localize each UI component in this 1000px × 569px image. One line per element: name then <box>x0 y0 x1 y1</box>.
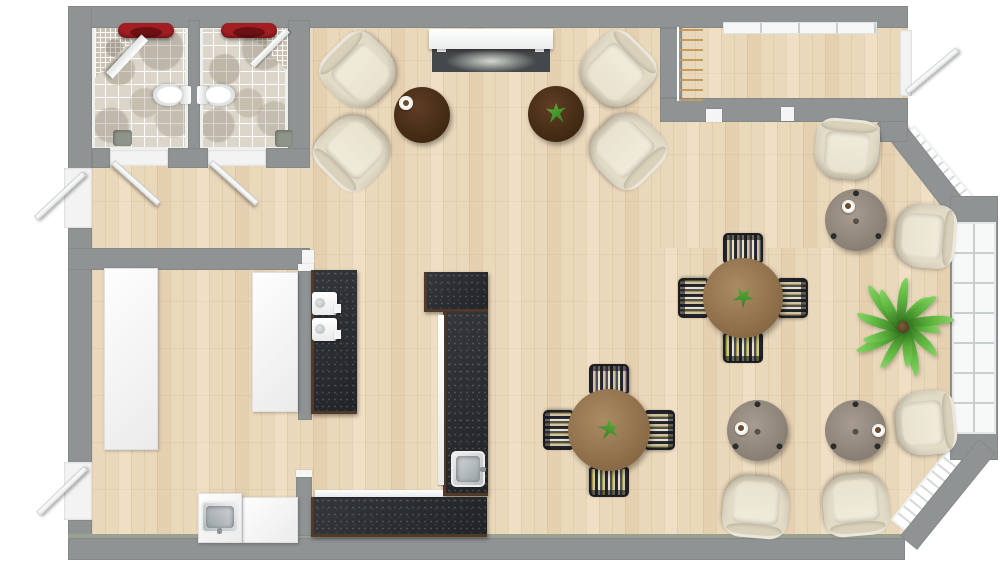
wall-kitchen-stub <box>296 474 312 536</box>
wall-bottom <box>68 534 905 560</box>
floor-drain[interactable] <box>275 130 293 147</box>
bar-counter-bottom[interactable] <box>311 497 487 537</box>
bay-armchair[interactable] <box>813 116 882 181</box>
potted-palm-plant[interactable] <box>851 275 955 379</box>
wall-bathroom-bottom <box>168 148 208 168</box>
entry-door[interactable] <box>905 47 959 94</box>
kitchen-sink[interactable] <box>201 501 239 533</box>
right-wall-window <box>952 222 996 434</box>
kitchen-side-counter[interactable] <box>252 272 298 412</box>
bay-armchair[interactable] <box>820 471 891 539</box>
bay-armchair[interactable] <box>720 473 791 541</box>
toilet[interactable] <box>153 83 191 107</box>
coat-rack[interactable] <box>677 27 703 101</box>
bar-shelf-edge[interactable] <box>438 315 444 485</box>
bar-counter-top-block[interactable] <box>424 272 488 312</box>
wall-kitchen-top <box>68 248 310 270</box>
red-basin[interactable] <box>221 23 277 38</box>
corridor-window <box>723 22 877 34</box>
coffee-cup[interactable] <box>399 96 413 110</box>
coffee-cup[interactable] <box>842 200 855 213</box>
espresso-machine[interactable] <box>312 318 337 341</box>
coffee-cup[interactable] <box>872 424 885 437</box>
wall-kitchen-right <box>298 268 312 420</box>
bar-shelf-edge[interactable] <box>315 490 443 497</box>
media-console[interactable] <box>429 29 553 49</box>
wall-left-upper <box>68 6 92 170</box>
wall-bathroom-bottom <box>266 148 310 168</box>
round-side-table[interactable] <box>825 189 887 251</box>
kitchen-wall-cabinets[interactable] <box>104 268 158 450</box>
floor-drain[interactable] <box>113 130 132 146</box>
bay-armchair[interactable] <box>893 389 958 458</box>
floor-plan-canvas <box>0 0 1000 569</box>
coffee-table[interactable] <box>394 87 450 143</box>
wall-end-cap <box>296 470 312 477</box>
red-basin[interactable] <box>118 23 174 38</box>
bar-sink[interactable] <box>451 451 485 487</box>
wall-bathroom-bottom <box>92 148 110 168</box>
coffee-cup[interactable] <box>735 422 748 435</box>
tv-screen[interactable] <box>432 48 550 72</box>
doorway-jamb <box>781 107 794 121</box>
toilet[interactable] <box>197 83 235 107</box>
doorway-jamb <box>706 109 722 122</box>
dining-chair[interactable] <box>589 467 629 497</box>
bay-armchair[interactable] <box>893 202 958 271</box>
kitchen-bottom-counter[interactable] <box>242 497 298 543</box>
espresso-machine[interactable] <box>312 292 337 315</box>
